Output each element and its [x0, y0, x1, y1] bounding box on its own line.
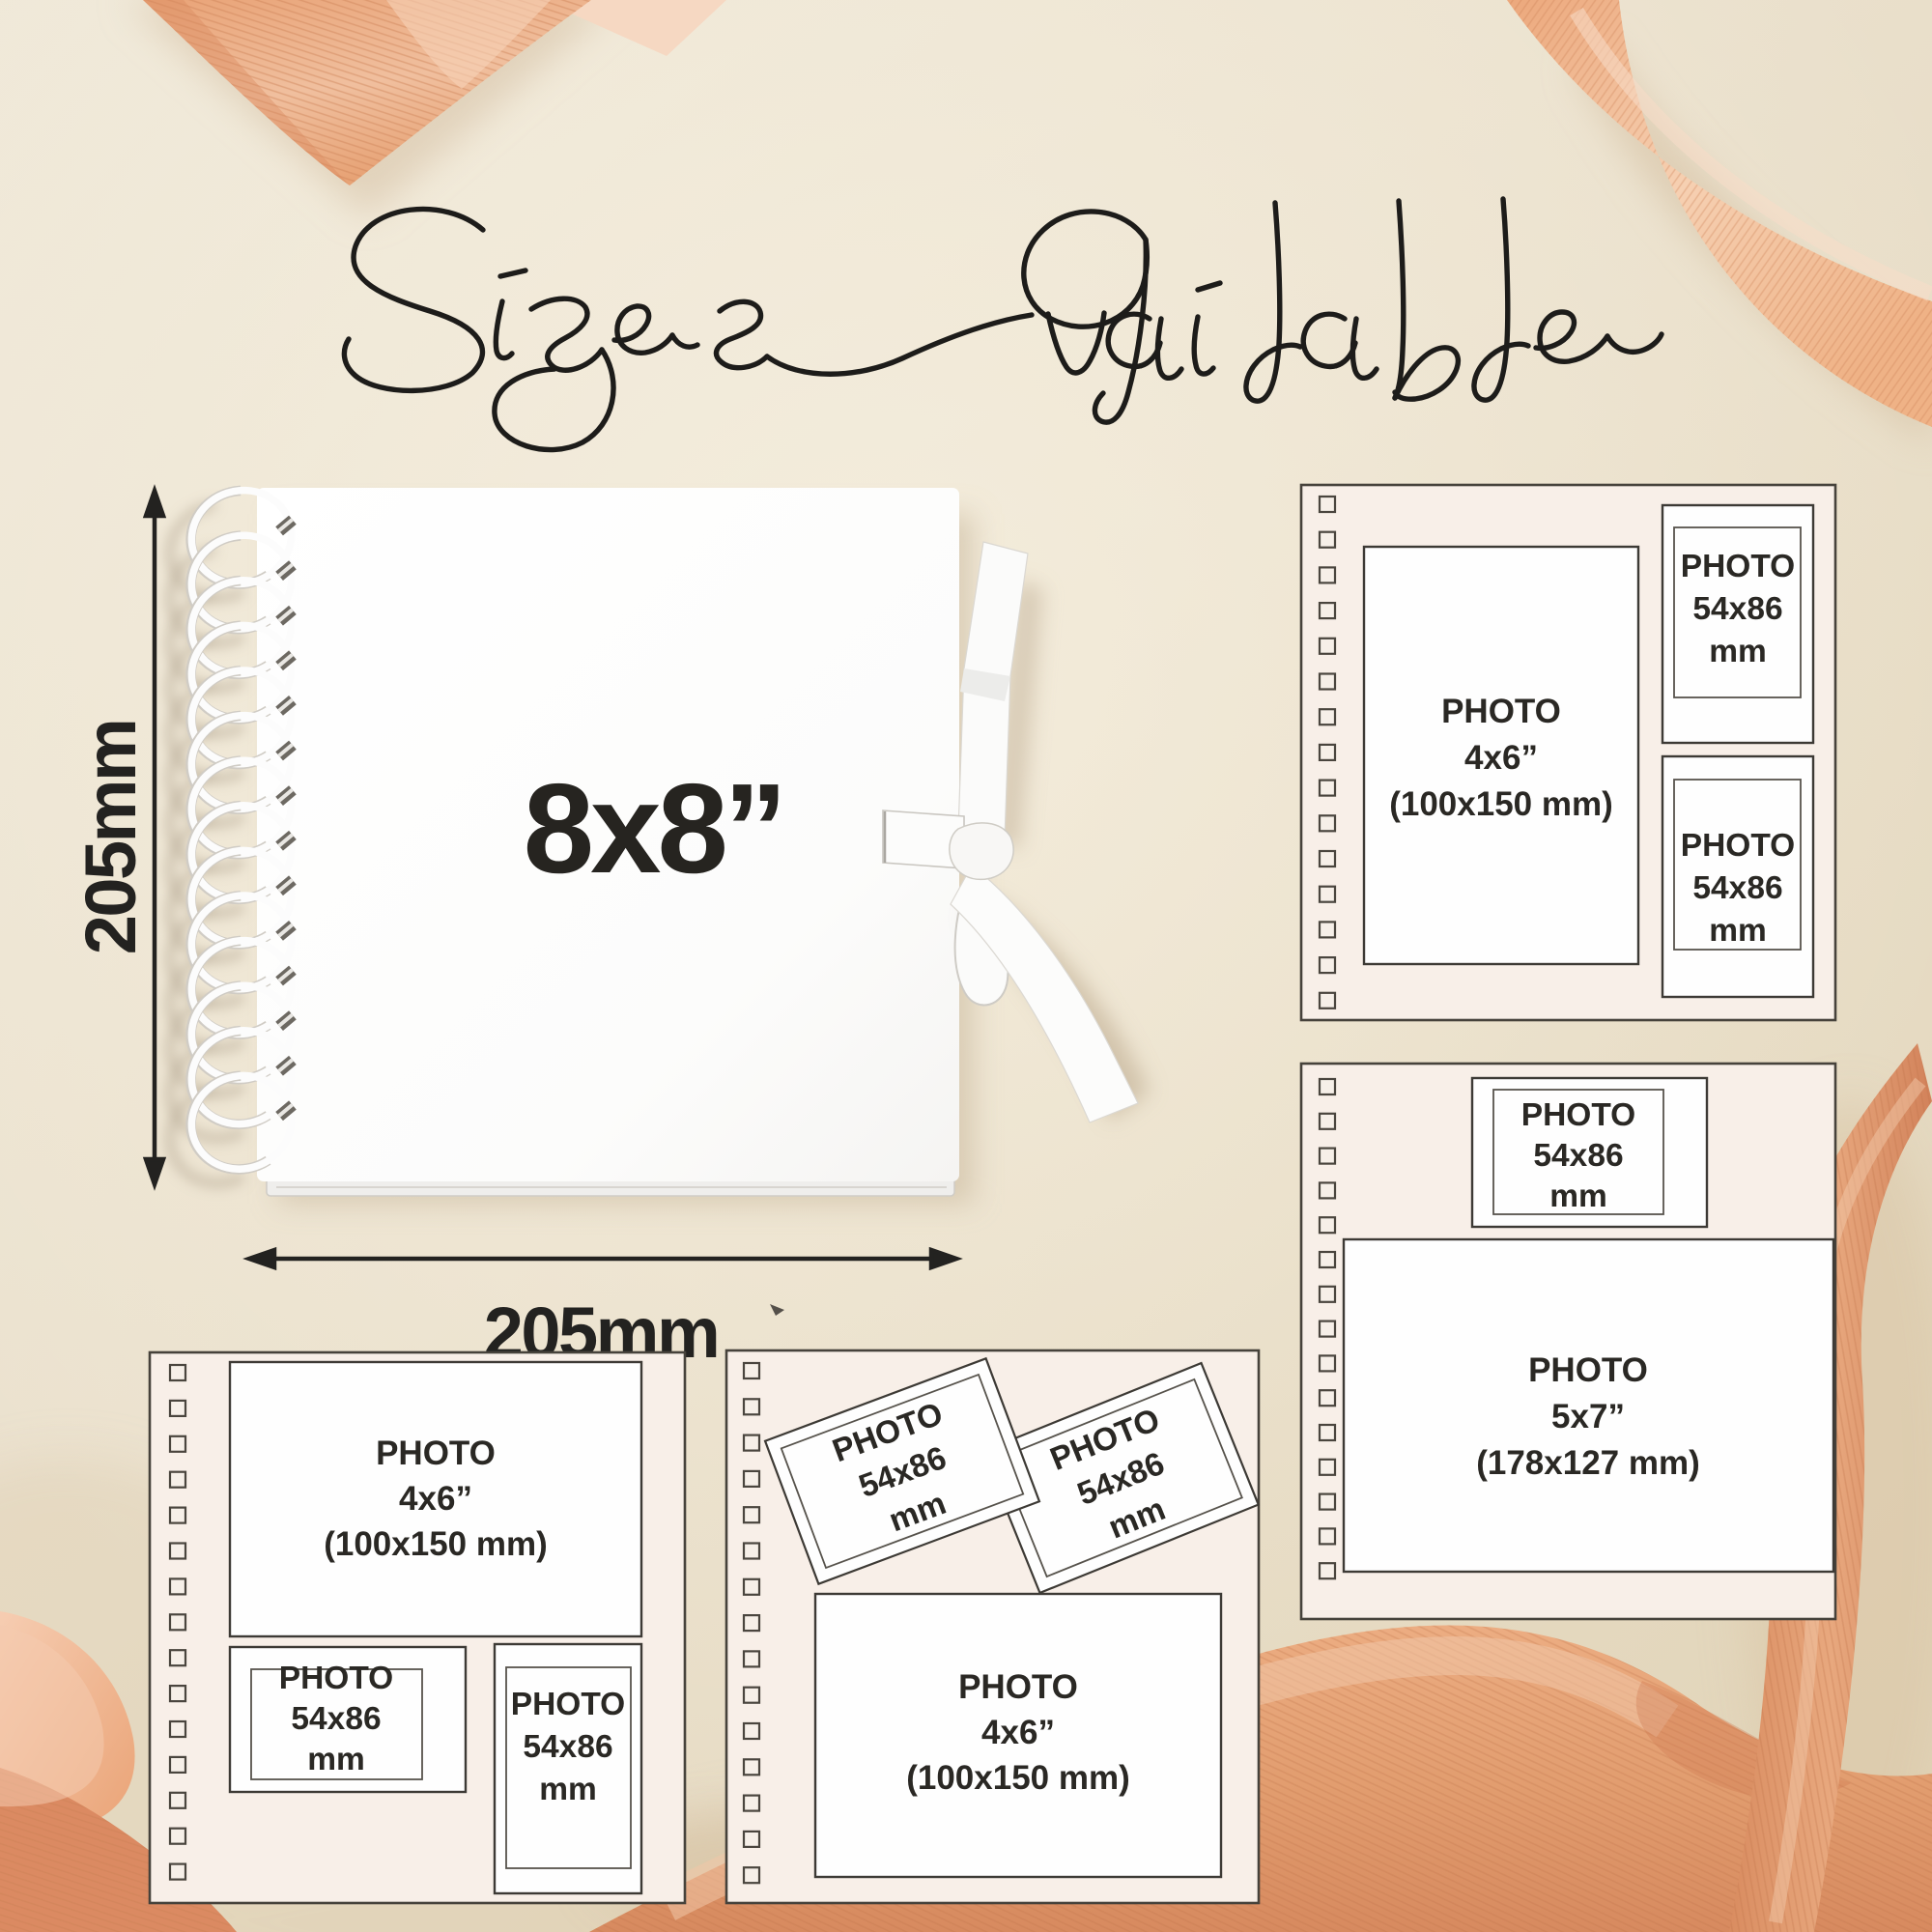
svg-text:54x86: 54x86	[523, 1729, 612, 1765]
svg-text:PHOTO: PHOTO	[1528, 1351, 1648, 1389]
svg-text:(100x150 mm): (100x150 mm)	[324, 1525, 548, 1563]
svg-text:4x6”: 4x6”	[399, 1480, 472, 1518]
svg-text:PHOTO: PHOTO	[1441, 693, 1561, 730]
svg-text:mm: mm	[1549, 1179, 1607, 1214]
svg-text:(178x127 mm): (178x127 mm)	[1476, 1444, 1700, 1482]
svg-text:PHOTO: PHOTO	[511, 1687, 626, 1722]
svg-text:(100x150 mm): (100x150 mm)	[906, 1759, 1130, 1797]
svg-text:PHOTO: PHOTO	[1681, 828, 1796, 864]
svg-text:54x86: 54x86	[1692, 591, 1782, 627]
svg-text:PHOTO: PHOTO	[376, 1435, 496, 1472]
svg-text:54x86: 54x86	[1533, 1138, 1623, 1174]
svg-text:4x6”: 4x6”	[1464, 739, 1538, 777]
svg-text:5x7”: 5x7”	[1551, 1398, 1625, 1435]
svg-text:mm: mm	[539, 1772, 597, 1807]
svg-text:mm: mm	[307, 1742, 365, 1777]
svg-text:PHOTO: PHOTO	[1681, 549, 1796, 584]
svg-text:mm: mm	[1709, 634, 1767, 669]
svg-text:(100x150 mm): (100x150 mm)	[1389, 785, 1613, 823]
svg-text:mm: mm	[1709, 913, 1767, 949]
svg-text:54x86: 54x86	[1692, 870, 1782, 906]
svg-text:PHOTO: PHOTO	[958, 1668, 1078, 1706]
svg-text:PHOTO: PHOTO	[1521, 1097, 1636, 1133]
svg-text:4x6”: 4x6”	[981, 1714, 1055, 1751]
svg-text:205mm: 205mm	[71, 721, 151, 955]
svg-text:54x86: 54x86	[291, 1701, 381, 1737]
svg-text:PHOTO: PHOTO	[279, 1661, 394, 1696]
svg-text:8x8’’: 8x8’’	[524, 757, 783, 899]
